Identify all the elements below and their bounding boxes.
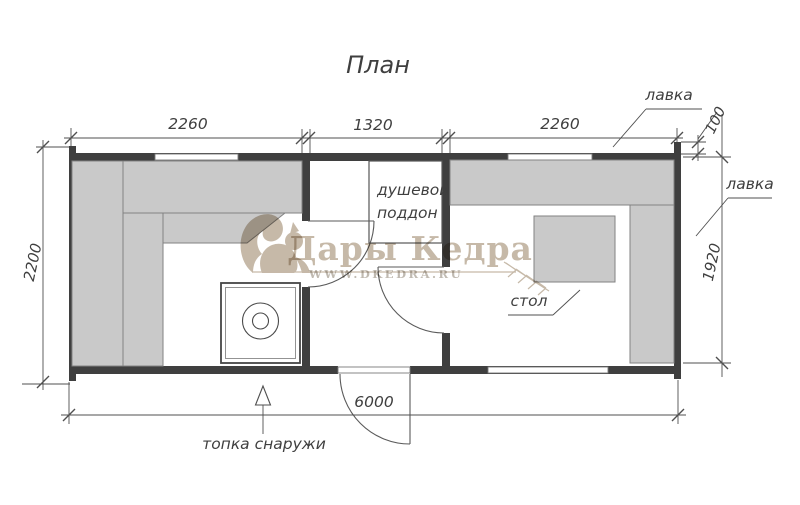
watermark-brand: Дары Кедра (275, 229, 545, 268)
wall-partition1-lower (302, 287, 310, 366)
firebox-arrow (256, 386, 271, 434)
wall-partition1-upper (302, 161, 310, 221)
dim-width-right: 2260 (510, 116, 610, 133)
watermark-url: WWW.DKEDRA.RU (286, 267, 486, 281)
bench-restroom-right (630, 205, 674, 363)
label-table: стол (500, 293, 558, 310)
leader-bench-top (613, 109, 702, 147)
window-top-left-room (155, 154, 238, 160)
floor-plan-drawing: План 2260 1320 2260 100 1920 2200 6000 л… (0, 0, 800, 505)
dim-width-middle: 1320 (323, 117, 423, 134)
page-title: План (318, 52, 438, 78)
label-bench-top: лавка (634, 87, 704, 104)
leader-bench-right (696, 198, 772, 236)
window-bottom-right-room (488, 367, 608, 373)
bench-steamroom-left-strip (72, 161, 123, 366)
bench-restroom-top (450, 160, 674, 205)
wall-bottom-left-segment (76, 366, 338, 374)
bench-steamroom-upper-tier (123, 161, 302, 213)
label-shower-line1: душевой (377, 182, 449, 199)
label-firebox: топка снаружи (179, 436, 349, 453)
label-bench-right: лавка (715, 176, 785, 193)
window-top-right-room (508, 154, 592, 160)
label-shower-line2: поддон (377, 205, 438, 222)
bench-steamroom-inner-strip (123, 213, 163, 366)
dim-total-width: 6000 (334, 394, 414, 411)
table-rect (534, 216, 615, 282)
entrance-threshold (338, 367, 410, 373)
dim-width-left: 2260 (138, 116, 238, 133)
stove-icon (221, 283, 300, 363)
wall-partition2-lower (442, 333, 450, 366)
wall-right (674, 142, 681, 379)
